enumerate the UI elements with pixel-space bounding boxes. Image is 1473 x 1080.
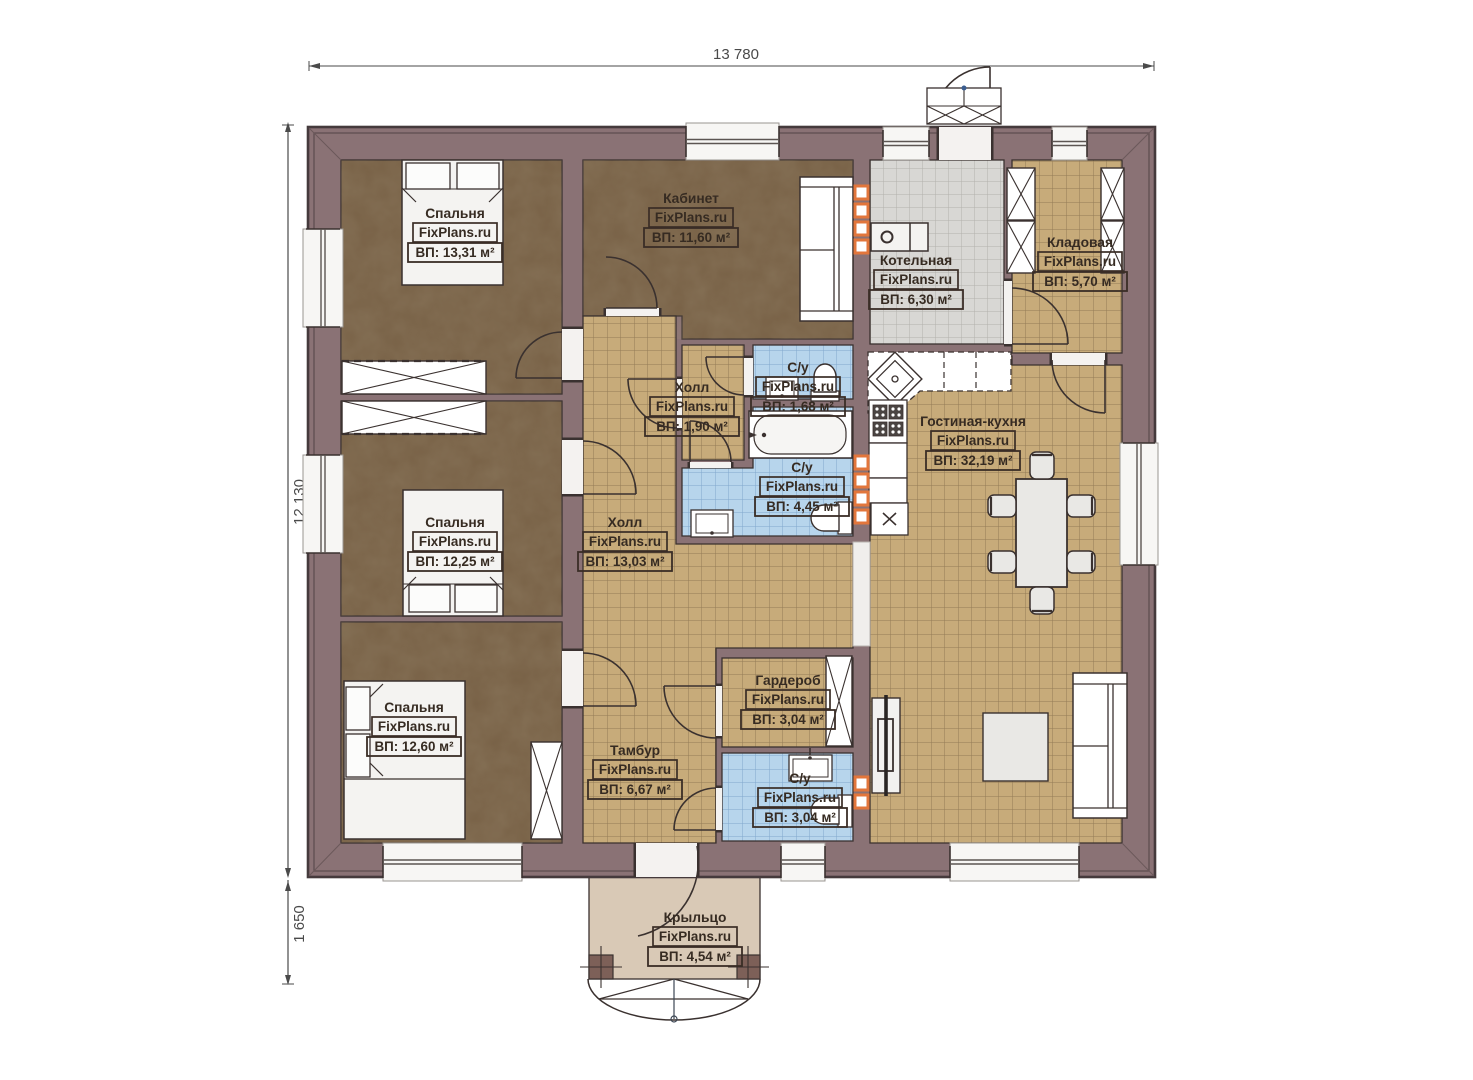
svg-text:Крыльцо: Крыльцо [664,910,727,925]
svg-text:ВП: 11,60 м²: ВП: 11,60 м² [652,230,731,245]
svg-text:Котельная: Котельная [880,253,952,268]
svg-text:ВП: 12,25 м²: ВП: 12,25 м² [415,554,495,569]
svg-text:С/у: С/у [787,360,809,375]
svg-text:ВП: 4,54 м²: ВП: 4,54 м² [659,949,731,964]
svg-text:ВП: 1,90 м²: ВП: 1,90 м² [656,419,728,434]
svg-text:FixPlans.ru: FixPlans.ru [764,790,836,805]
svg-text:ВП: 32,19 м²: ВП: 32,19 м² [933,453,1013,468]
svg-text:ВП: 6,30 м²: ВП: 6,30 м² [880,292,952,307]
svg-text:ВП: 12,60 м²: ВП: 12,60 м² [374,739,454,754]
svg-text:FixPlans.ru: FixPlans.ru [599,762,671,777]
svg-text:13 780: 13 780 [713,46,759,63]
svg-text:FixPlans.ru: FixPlans.ru [656,399,728,414]
svg-text:ВП: 3,04 м²: ВП: 3,04 м² [752,712,824,727]
svg-text:ВП: 13,31 м²: ВП: 13,31 м² [415,245,495,260]
svg-text:FixPlans.ru: FixPlans.ru [655,210,727,225]
svg-text:FixPlans.ru: FixPlans.ru [659,929,731,944]
svg-text:FixPlans.ru: FixPlans.ru [880,272,952,287]
svg-text:Гардероб: Гардероб [755,673,820,688]
svg-text:С/у: С/у [791,460,813,475]
svg-text:FixPlans.ru: FixPlans.ru [766,479,838,494]
svg-text:Тамбур: Тамбур [610,743,660,758]
svg-text:FixPlans.ru: FixPlans.ru [419,534,491,549]
svg-text:FixPlans.ru: FixPlans.ru [419,225,491,240]
svg-text:ВП: 4,45 м²: ВП: 4,45 м² [766,499,838,514]
svg-text:1 650: 1 650 [291,905,308,943]
svg-text:Спальня: Спальня [425,515,485,530]
svg-text:FixPlans.ru: FixPlans.ru [937,433,1009,448]
svg-text:ВП: 5,70 м²: ВП: 5,70 м² [1044,274,1116,289]
svg-text:FixPlans.ru: FixPlans.ru [1044,254,1116,269]
svg-text:Кабинет: Кабинет [663,191,719,206]
svg-text:Спальня: Спальня [384,700,444,715]
svg-text:FixPlans.ru: FixPlans.ru [762,379,834,394]
svg-text:Кладовая: Кладовая [1047,235,1113,250]
svg-text:FixPlans.ru: FixPlans.ru [378,719,450,734]
svg-text:ВП: 3,04 м²: ВП: 3,04 м² [764,810,836,825]
svg-text:Спальня: Спальня [425,206,485,221]
svg-text:Гостиная-кухня: Гостиная-кухня [920,414,1026,429]
svg-text:ВП: 1,68 м²: ВП: 1,68 м² [762,399,834,414]
svg-text:Холл: Холл [608,515,643,530]
svg-text:FixPlans.ru: FixPlans.ru [752,692,824,707]
svg-text:С/у: С/у [789,771,811,786]
svg-text:ВП: 13,03 м²: ВП: 13,03 м² [585,554,665,569]
svg-text:ВП: 6,67 м²: ВП: 6,67 м² [599,782,671,797]
svg-text:FixPlans.ru: FixPlans.ru [589,534,661,549]
svg-text:Холл: Холл [675,380,710,395]
